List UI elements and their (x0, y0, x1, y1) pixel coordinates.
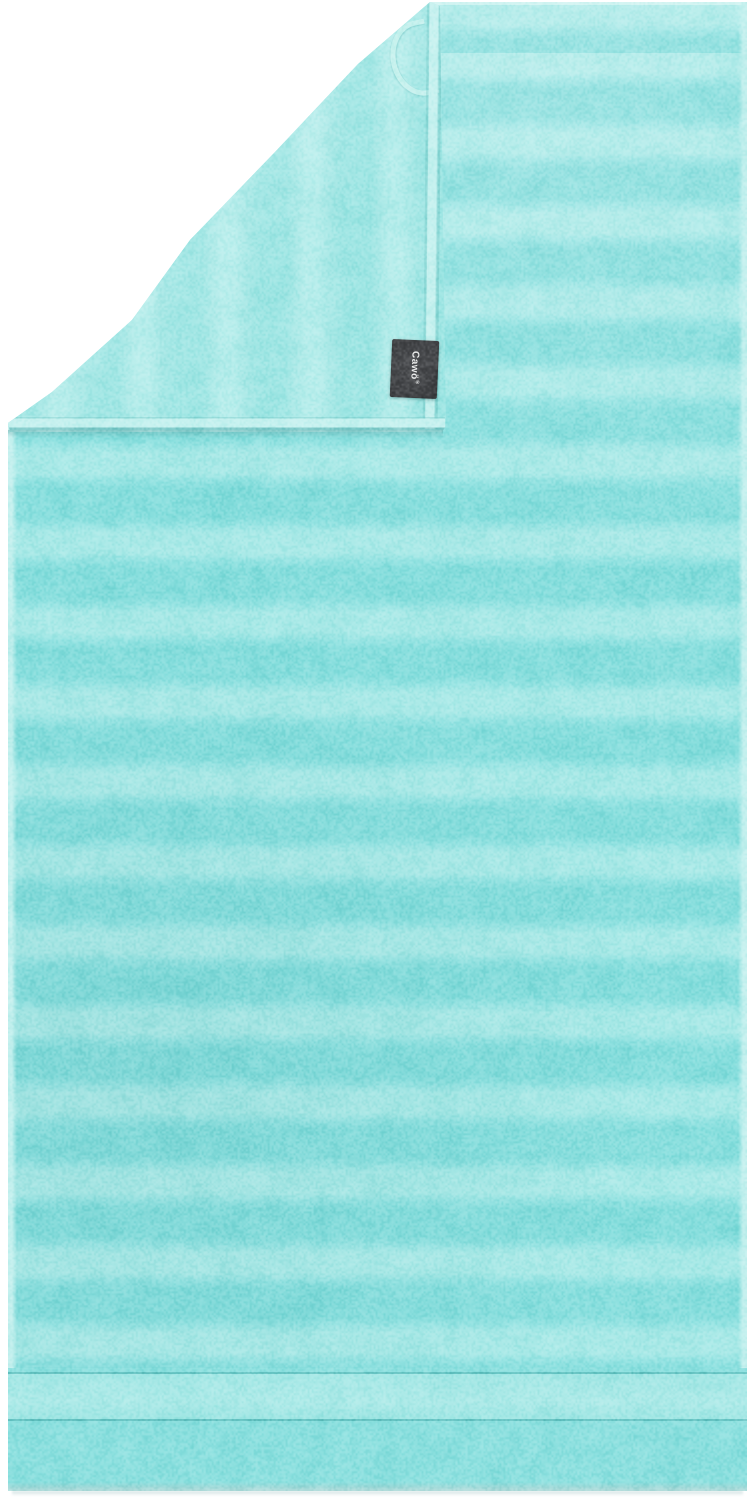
registered-mark: ® (414, 380, 420, 387)
brand-label-text: Cawö® (408, 351, 421, 387)
flap-bottom-hem (8, 417, 445, 430)
flap-drop-shadow (8, 430, 443, 438)
top-hem (8, 2, 747, 15)
stitch-seam-lower (8, 1419, 747, 1421)
towel-image: Cawö® (8, 2, 747, 1491)
brand-label: Cawö® (390, 339, 439, 399)
velour-band (8, 1374, 747, 1419)
right-hem (738, 2, 747, 1491)
stitch-seam-upper (8, 1372, 747, 1374)
bottom-border-band (8, 1368, 747, 1491)
towel-product-photo: Cawö® (0, 0, 755, 1500)
left-hem (8, 418, 17, 1491)
bottom-shadow (12, 1491, 743, 1496)
bottom-edge (8, 1482, 747, 1491)
